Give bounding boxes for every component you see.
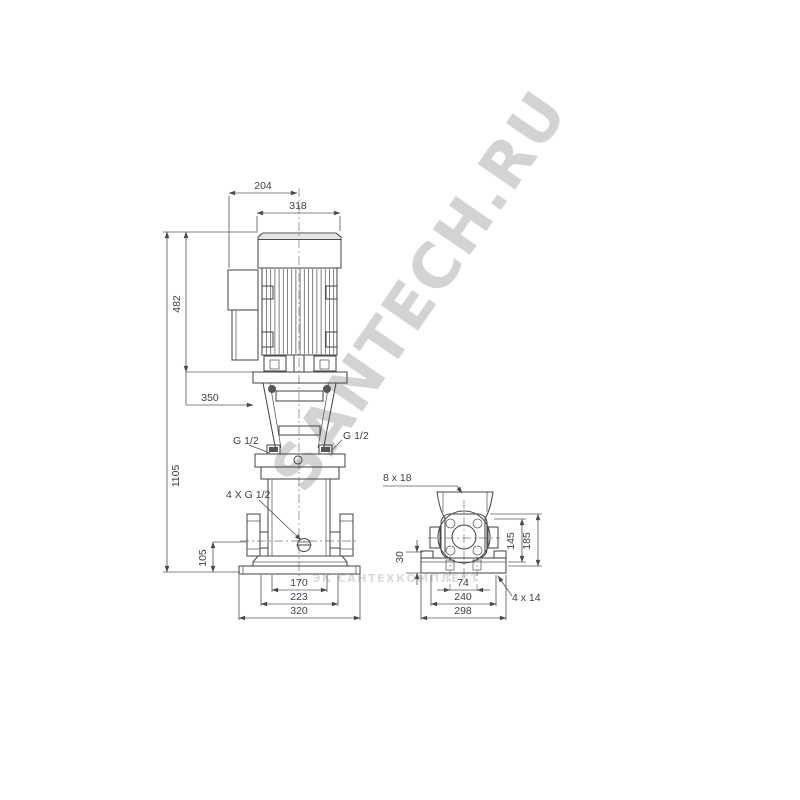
- dim-240: 240: [454, 591, 472, 603]
- motor-fan-cover: [258, 233, 341, 268]
- dim-170: 170: [290, 577, 308, 589]
- coupling-bolt: [268, 385, 276, 393]
- dim-350: 350: [201, 392, 219, 404]
- motor-body: [262, 268, 337, 355]
- dim-298: 298: [454, 605, 472, 617]
- dim-223: 223: [290, 591, 308, 603]
- dim-482: 482: [171, 295, 183, 313]
- terminal-box: [228, 270, 258, 360]
- lifting-lug: [326, 286, 337, 299]
- dim-30: 30: [394, 551, 406, 563]
- side-dimensions: 8 x 18 30 145 185 74: [383, 472, 542, 620]
- dim-105: 105: [197, 549, 209, 567]
- pump-dimensional-drawing: SANTECH.RU ЭК САНТЕХКОМПЛЕКТ: [0, 0, 800, 800]
- watermark-main: SANTECH.RU: [257, 77, 582, 504]
- drawing-page: SANTECH.RU ЭК САНТЕХКОМПЛЕКТ: [0, 0, 800, 800]
- lifting-lug: [262, 286, 273, 299]
- label-4xg12: 4 X G 1/2: [226, 489, 271, 501]
- dim-185: 185: [521, 532, 533, 550]
- dim-320: 320: [290, 605, 308, 617]
- dim-145: 145: [505, 532, 517, 550]
- dim-1105: 1105: [170, 465, 182, 488]
- dim-74: 74: [457, 577, 469, 589]
- side-base: [421, 551, 506, 573]
- label-8x18: 8 x 18: [383, 472, 412, 484]
- dim-318: 318: [289, 200, 307, 212]
- drain-plug: [297, 539, 311, 552]
- coupling-bolt: [323, 385, 331, 393]
- flange-bolt-hole: [473, 519, 482, 528]
- lifting-lug: [326, 332, 337, 347]
- flange-bolt-hole: [446, 519, 455, 528]
- base-foot: [494, 551, 506, 558]
- lifting-lug: [262, 332, 273, 347]
- label-g12-right: G 1/2: [343, 430, 369, 442]
- dim-204: 204: [254, 180, 272, 192]
- side-view: 8 x 18 30 145 185 74: [383, 472, 542, 620]
- label-g12-left: G 1/2: [233, 435, 259, 447]
- flange-bolt-hole: [473, 546, 482, 555]
- label-4x14: 4 x 14: [512, 592, 541, 604]
- watermark-layer: SANTECH.RU ЭК САНТЕХКОМПЛЕКТ: [257, 77, 582, 585]
- flange-bolt-hole: [446, 546, 455, 555]
